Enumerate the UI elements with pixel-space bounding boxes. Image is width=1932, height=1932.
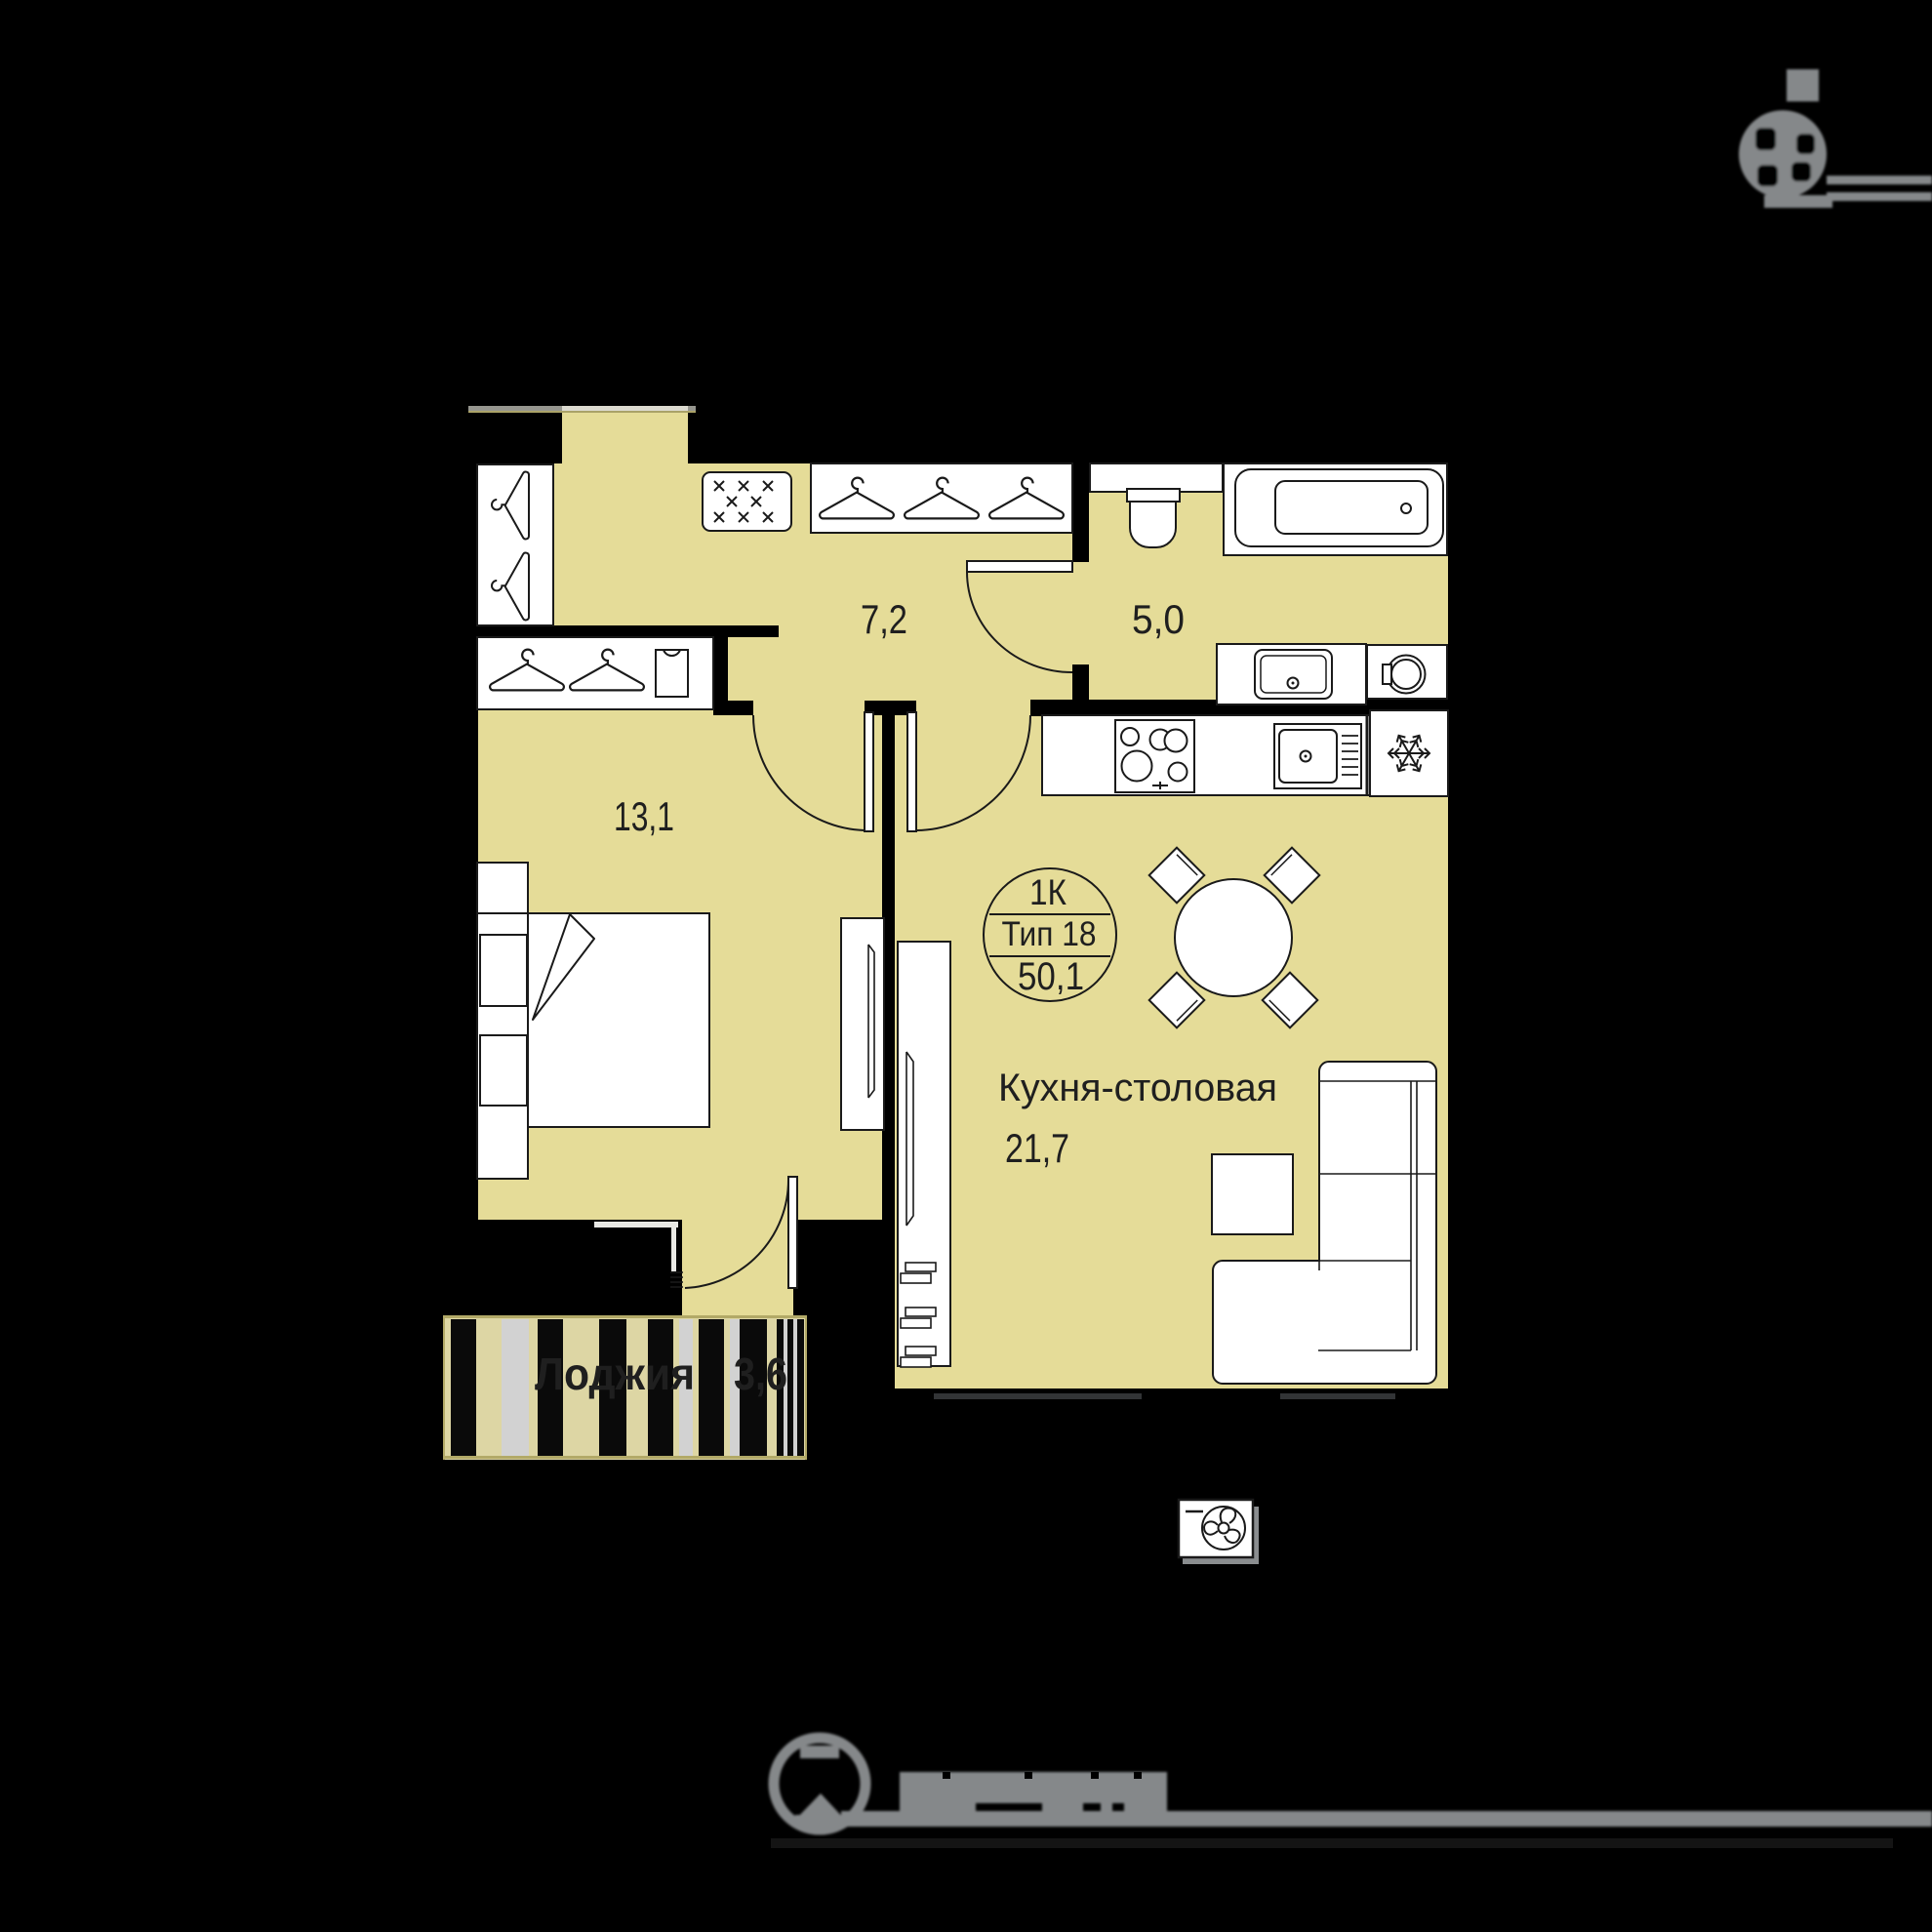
svg-text:Тип 18: Тип 18 bbox=[1002, 915, 1097, 953]
svg-text:3,6: 3,6 bbox=[734, 1348, 787, 1399]
svg-text:21,7: 21,7 bbox=[1005, 1125, 1069, 1171]
svg-text:1К: 1К bbox=[1029, 872, 1067, 912]
svg-text:7,2: 7,2 bbox=[861, 596, 907, 642]
svg-text:13,1: 13,1 bbox=[614, 793, 674, 839]
svg-text:50,1: 50,1 bbox=[1018, 955, 1084, 998]
svg-text:Кухня-столовая: Кухня-столовая bbox=[998, 1067, 1277, 1109]
svg-text:Лоджия: Лоджия bbox=[535, 1348, 695, 1399]
svg-text:5,0: 5,0 bbox=[1132, 596, 1185, 642]
